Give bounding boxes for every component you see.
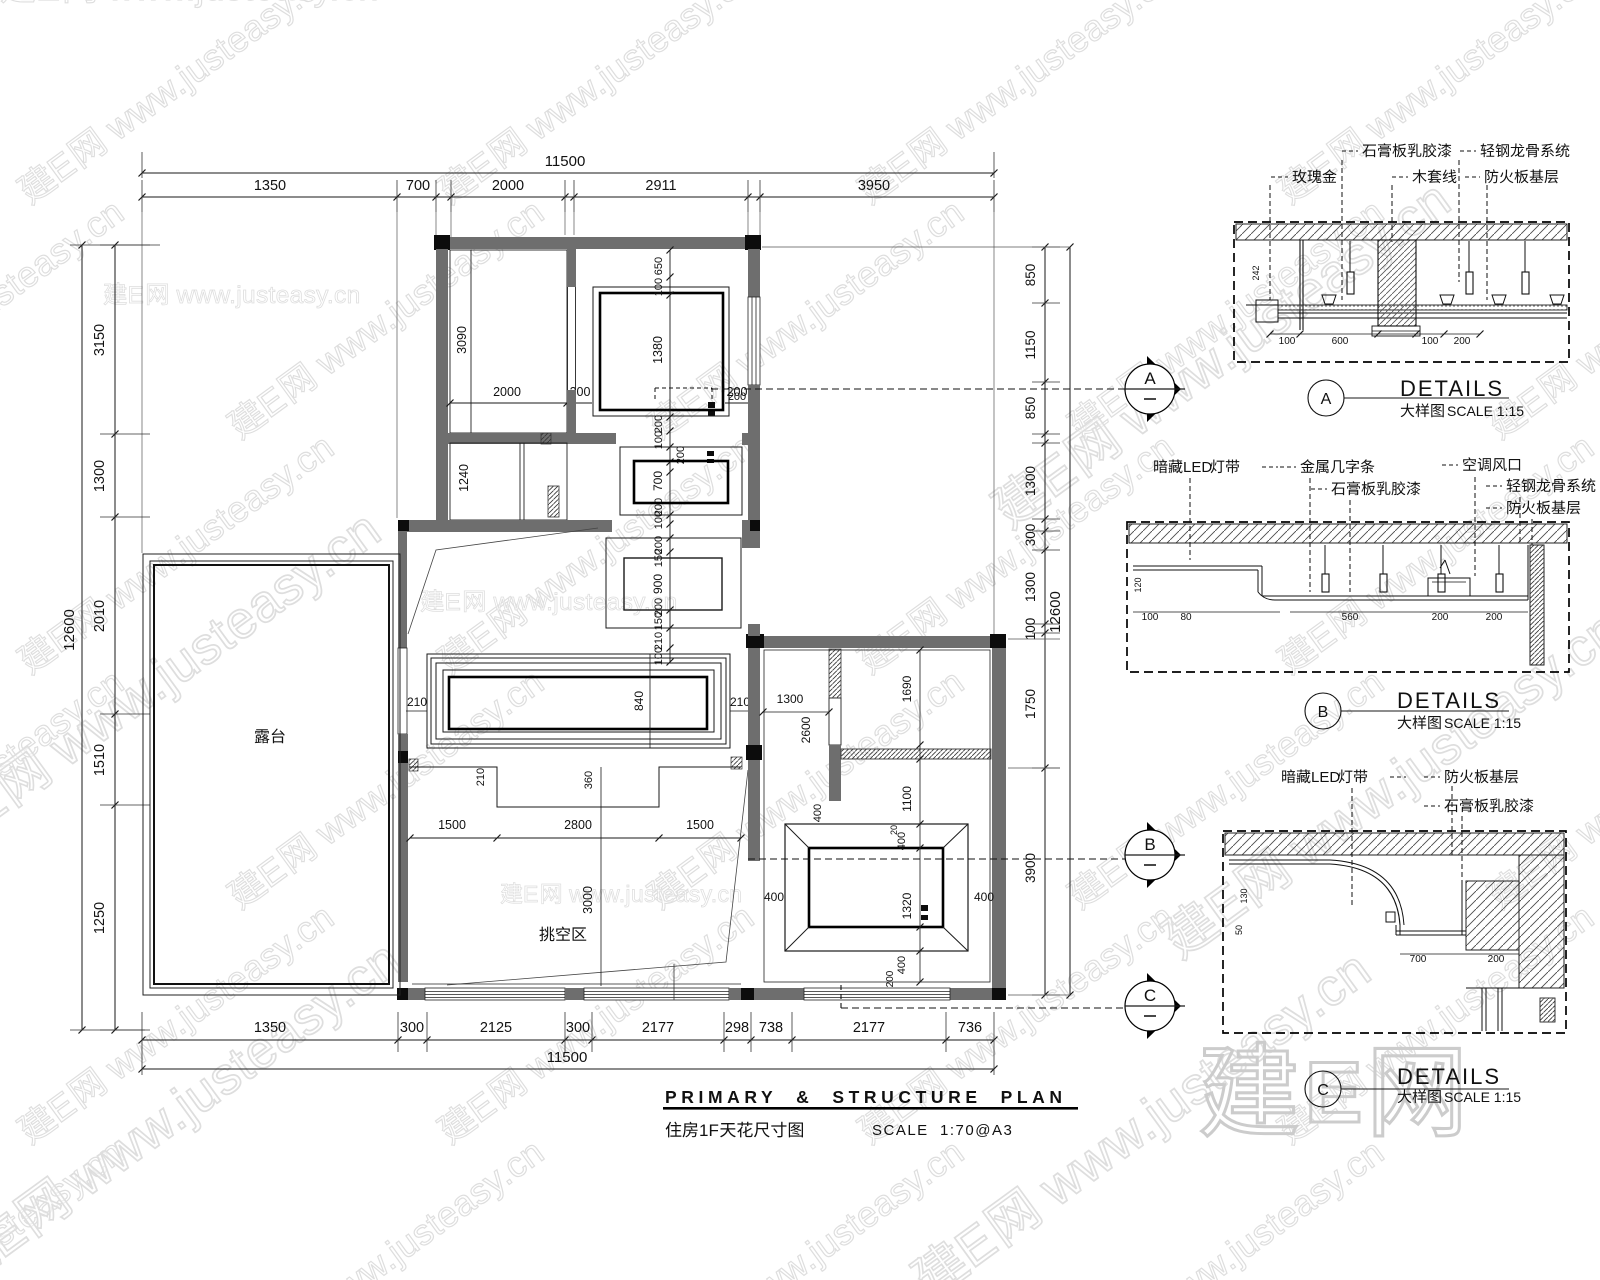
svg-text:200: 200 (1454, 336, 1471, 347)
svg-text:1100: 1100 (900, 786, 914, 812)
svg-text:1750: 1750 (1023, 689, 1038, 719)
svg-text:3900: 3900 (1023, 853, 1038, 883)
svg-text:LED: LED (1183, 459, 1212, 476)
svg-text:850: 850 (1023, 264, 1038, 287)
svg-text:298: 298 (725, 1020, 749, 1036)
svg-text:DETAILS: DETAILS (1397, 1064, 1501, 1089)
svg-text:3090: 3090 (455, 326, 469, 354)
svg-text:840: 840 (632, 691, 646, 711)
svg-text:SCALE 1:15: SCALE 1:15 (1447, 403, 1524, 419)
svg-text:242: 242 (1251, 265, 1261, 280)
svg-text:600: 600 (1332, 336, 1349, 347)
svg-text:PRIMARY & STRUCTURE PLAN: PRIMARY & STRUCTURE PLAN (665, 1087, 1067, 1107)
svg-text:700: 700 (1410, 954, 1427, 965)
svg-text:12600: 12600 (1047, 591, 1064, 633)
svg-text:120: 120 (1133, 577, 1143, 592)
svg-text:SCALE 1:70@A3: SCALE 1:70@A3 (872, 1122, 1013, 1139)
svg-text:11500: 11500 (547, 1049, 588, 1066)
svg-text:300: 300 (566, 1020, 590, 1036)
svg-text:100: 100 (653, 647, 665, 665)
svg-text:80: 80 (1180, 612, 1192, 623)
svg-text:200: 200 (653, 415, 665, 433)
svg-text:2000: 2000 (493, 385, 521, 399)
svg-text:1300: 1300 (92, 460, 108, 492)
svg-text:DETAILS: DETAILS (1400, 376, 1504, 401)
svg-text:360: 360 (583, 771, 595, 789)
svg-text:650: 650 (653, 257, 665, 275)
svg-text:A: A (1321, 391, 1332, 408)
svg-text:560: 560 (1342, 612, 1359, 623)
svg-text:400: 400 (896, 956, 908, 974)
svg-text:2800: 2800 (564, 818, 592, 832)
svg-text:400: 400 (764, 890, 784, 904)
svg-text:DETAILS: DETAILS (1397, 688, 1501, 713)
svg-text:210: 210 (407, 695, 427, 709)
svg-text:SCALE 1:15: SCALE 1:15 (1444, 715, 1521, 731)
svg-text:400: 400 (974, 890, 994, 904)
svg-text:1500: 1500 (438, 818, 466, 832)
svg-text:C: C (1144, 986, 1156, 1005)
svg-text:www.justeasy.cn: www.justeasy.cn (107, 0, 379, 8)
svg-text:2125: 2125 (480, 1020, 512, 1036)
svg-text:2600: 2600 (799, 716, 813, 743)
svg-text:400: 400 (812, 804, 824, 822)
svg-text:100: 100 (653, 278, 665, 296)
svg-text:2911: 2911 (645, 178, 676, 194)
svg-text:3000: 3000 (581, 886, 595, 914)
svg-text:1690: 1690 (900, 675, 914, 702)
svg-text:LED: LED (1311, 769, 1340, 786)
svg-text:12600: 12600 (61, 609, 78, 651)
svg-text:200: 200 (728, 391, 746, 403)
svg-text:C: C (1317, 1082, 1329, 1099)
svg-text:3950: 3950 (858, 178, 890, 194)
svg-text:20: 20 (889, 825, 899, 835)
svg-text:1380: 1380 (651, 336, 665, 364)
svg-text:1350: 1350 (254, 1020, 286, 1036)
svg-text:130: 130 (1239, 888, 1249, 903)
svg-text:1250: 1250 (92, 902, 108, 934)
svg-text:50: 50 (1234, 925, 1244, 935)
svg-text:300: 300 (1023, 524, 1038, 547)
svg-text:100: 100 (1422, 336, 1439, 347)
svg-text:900: 900 (651, 574, 665, 594)
svg-text:200: 200 (1432, 612, 1449, 623)
svg-text:1510: 1510 (92, 744, 108, 776)
svg-text:B: B (1144, 835, 1155, 854)
svg-text:1300: 1300 (777, 692, 804, 706)
svg-text:1300: 1300 (1023, 466, 1038, 496)
svg-text:1500: 1500 (686, 818, 714, 832)
svg-text:700: 700 (406, 178, 430, 194)
svg-text:100: 100 (1142, 612, 1159, 623)
svg-text:1350: 1350 (254, 178, 286, 194)
svg-text:700: 700 (651, 471, 665, 491)
svg-text:210: 210 (475, 768, 487, 786)
svg-text:B: B (1318, 704, 1329, 721)
svg-text:736: 736 (958, 1020, 982, 1036)
svg-text:200: 200 (1488, 954, 1505, 965)
svg-text:1320: 1320 (900, 892, 914, 919)
svg-text:1300: 1300 (1023, 572, 1038, 602)
svg-text:738: 738 (759, 1020, 783, 1036)
svg-text:200: 200 (885, 970, 896, 987)
svg-text:E: E (1305, 1045, 1362, 1141)
svg-text:300: 300 (400, 1020, 424, 1036)
svg-text:1240: 1240 (457, 464, 471, 492)
svg-text:11500: 11500 (545, 153, 586, 170)
svg-text:2000: 2000 (492, 178, 524, 194)
svg-text:SCALE 1:15: SCALE 1:15 (1444, 1089, 1521, 1105)
svg-text:210: 210 (730, 695, 750, 709)
svg-text:1150: 1150 (1023, 330, 1038, 359)
svg-text:A: A (1144, 369, 1156, 388)
svg-text:E: E (36, 0, 60, 8)
svg-text:100: 100 (653, 511, 665, 529)
svg-text:2177: 2177 (853, 1020, 885, 1036)
svg-text:3150: 3150 (92, 324, 108, 356)
svg-text:100: 100 (1023, 618, 1038, 641)
svg-text:2010: 2010 (92, 600, 108, 632)
svg-text:100: 100 (653, 431, 665, 449)
svg-text:150: 150 (653, 612, 665, 630)
svg-text:2177: 2177 (642, 1020, 674, 1036)
svg-text:200: 200 (1486, 612, 1503, 623)
svg-text:850: 850 (1023, 397, 1038, 420)
svg-text:1F: 1F (699, 1121, 719, 1140)
svg-text:100: 100 (1279, 336, 1296, 347)
